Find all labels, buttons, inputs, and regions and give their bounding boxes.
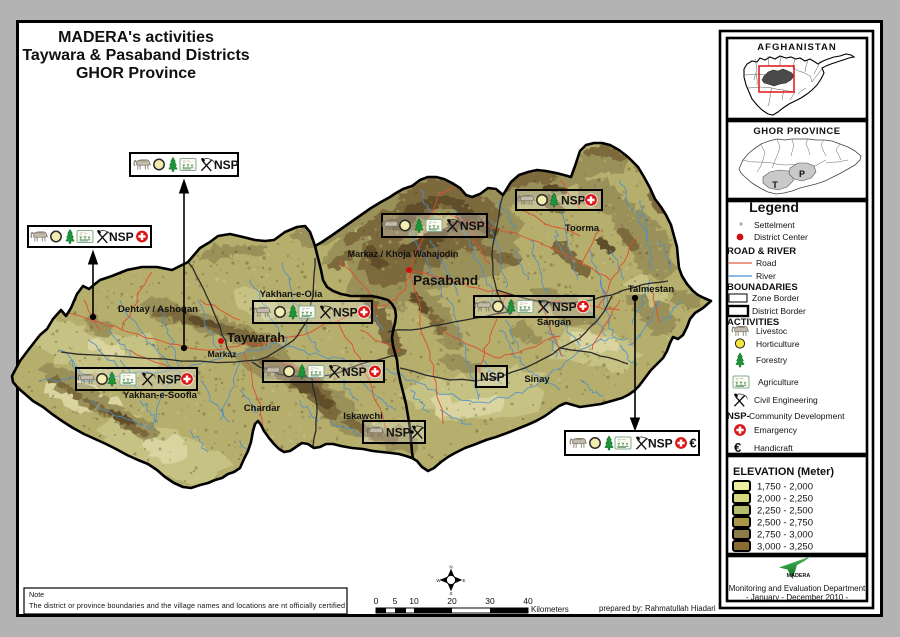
svg-text:20: 20 xyxy=(447,596,457,606)
svg-text:Legend: Legend xyxy=(749,199,799,215)
svg-text:2,750 - 3,000: 2,750 - 3,000 xyxy=(757,530,813,541)
svg-text:GHOR PROVINCE: GHOR PROVINCE xyxy=(753,126,840,137)
svg-text:Yakhan-e-Olia: Yakhan-e-Olia xyxy=(260,289,324,300)
svg-text:AFGHANISTAN: AFGHANISTAN xyxy=(757,42,836,53)
svg-text:Livestoc: Livestoc xyxy=(756,326,788,336)
svg-text:S: S xyxy=(449,591,452,596)
svg-text:Agriculture: Agriculture xyxy=(758,377,799,387)
svg-text:NSP: NSP xyxy=(552,300,577,314)
svg-text:Sinay: Sinay xyxy=(524,374,550,385)
svg-text:3,000 - 3,250: 3,000 - 3,250 xyxy=(757,542,813,553)
svg-text:E: E xyxy=(462,578,465,583)
svg-text:Settelment: Settelment xyxy=(754,220,795,230)
svg-text:Markaz: Markaz xyxy=(208,349,237,359)
svg-text:GHOR Province: GHOR Province xyxy=(76,65,196,82)
svg-text:0: 0 xyxy=(374,596,379,606)
svg-text:2,000 - 2,250: 2,000 - 2,250 xyxy=(757,494,813,505)
svg-text:Dehtay / Ashoqan: Dehtay / Ashoqan xyxy=(118,304,198,315)
svg-text:€: € xyxy=(689,436,696,451)
svg-text:Monitoring and Evaluation Depa: Monitoring and Evaluation Department xyxy=(729,584,866,593)
svg-text:NSP: NSP xyxy=(460,219,485,233)
svg-text:2,250 - 2,500: 2,250 - 2,500 xyxy=(757,506,813,517)
svg-text:NSP: NSP xyxy=(386,426,411,440)
svg-text:MADERA's activities: MADERA's activities xyxy=(58,29,214,46)
svg-text:MADERA: MADERA xyxy=(787,573,811,579)
svg-text:Handicraft: Handicraft xyxy=(754,443,793,453)
svg-text:The district or province bound: The district or province boundaries and … xyxy=(29,601,345,610)
svg-text:Forestry: Forestry xyxy=(756,355,788,365)
svg-text:Note: Note xyxy=(29,590,44,599)
svg-text:Yakhan-e-Soofla: Yakhan-e-Soofla xyxy=(123,390,198,401)
svg-text:District Center: District Center xyxy=(754,232,808,242)
svg-text:€: € xyxy=(734,440,741,455)
svg-text:Civil Engineering: Civil Engineering xyxy=(754,395,818,405)
svg-text:2,500 - 2,750: 2,500 - 2,750 xyxy=(757,518,813,529)
svg-text:ELEVATION (Meter): ELEVATION (Meter) xyxy=(733,466,834,478)
svg-text:Road: Road xyxy=(756,258,777,268)
svg-text:Sangan: Sangan xyxy=(537,317,572,328)
svg-text:- January - December 2010 -: - January - December 2010 - xyxy=(746,593,849,602)
svg-text:30: 30 xyxy=(485,596,495,606)
svg-text:5: 5 xyxy=(393,596,398,606)
svg-text:NSP: NSP xyxy=(342,365,367,379)
svg-text:prepared by: Rahmatullah Hiada: prepared by: Rahmatullah Hiadari xyxy=(599,604,716,613)
svg-text:Emargency: Emargency xyxy=(754,425,798,435)
svg-text:NSP: NSP xyxy=(109,230,134,244)
svg-text:Markaz / Khoja Wahajodin: Markaz / Khoja Wahajodin xyxy=(348,249,459,259)
svg-text:Talmestan: Talmestan xyxy=(628,284,674,295)
svg-text:N: N xyxy=(449,565,452,570)
svg-text:Horticulture: Horticulture xyxy=(756,339,800,349)
svg-text:P: P xyxy=(799,169,805,179)
svg-text:ROAD & RIVER: ROAD & RIVER xyxy=(727,246,796,257)
svg-text:NSP: NSP xyxy=(648,437,673,451)
svg-text:Pasaband: Pasaband xyxy=(413,273,478,288)
svg-text:10: 10 xyxy=(409,596,419,606)
svg-text:BOUNADARIES: BOUNADARIES xyxy=(727,282,798,293)
svg-text:Taywarah: Taywarah xyxy=(227,330,285,345)
svg-text:Taywara & Pasaband Districts: Taywara & Pasaband Districts xyxy=(22,47,249,64)
svg-text:Toorma: Toorma xyxy=(565,223,600,234)
svg-text:River: River xyxy=(756,271,776,281)
svg-text:NSP: NSP xyxy=(561,194,586,208)
svg-text:Kilometers: Kilometers xyxy=(531,605,569,614)
svg-text:NSP: NSP xyxy=(157,373,182,387)
svg-text:NSP: NSP xyxy=(480,370,505,384)
svg-text:NSP-: NSP- xyxy=(727,411,750,422)
svg-text:T: T xyxy=(772,180,778,190)
svg-text:NSP: NSP xyxy=(333,306,358,320)
svg-text:Community Development: Community Development xyxy=(749,411,845,421)
svg-text:District Border: District Border xyxy=(752,306,806,316)
svg-text:NSP: NSP xyxy=(214,158,239,172)
svg-text:Chardar: Chardar xyxy=(244,403,281,414)
svg-text:Zone Border: Zone Border xyxy=(752,293,799,303)
svg-text:1,750 - 2,000: 1,750 - 2,000 xyxy=(757,482,813,493)
